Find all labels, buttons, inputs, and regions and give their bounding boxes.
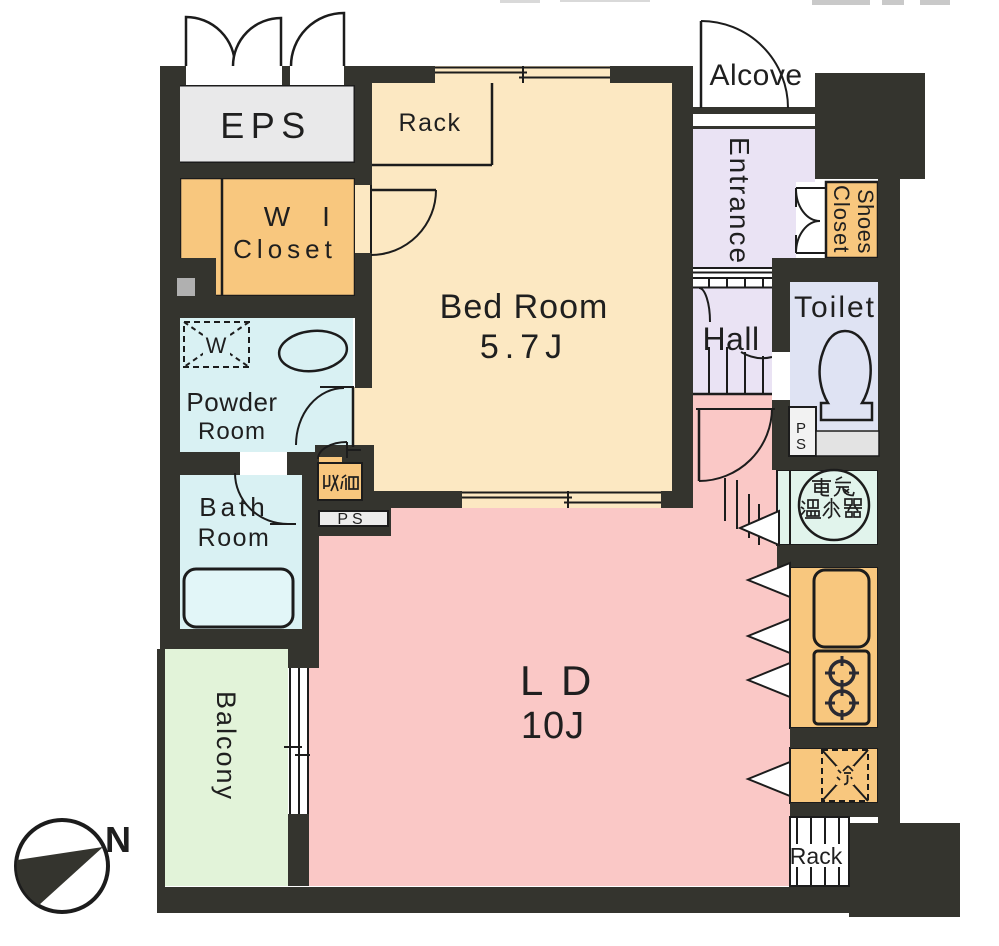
svg-text:Powder: Powder: [186, 387, 277, 417]
svg-text:D: D: [561, 657, 591, 704]
svg-text:Alcove: Alcove: [709, 59, 802, 92]
svg-text:W: W: [206, 333, 227, 358]
svg-text:Bath: Bath: [199, 492, 269, 522]
svg-text:10J: 10J: [521, 705, 585, 747]
svg-text:S: S: [796, 436, 806, 453]
svg-text:Shoes: Shoes: [853, 189, 878, 254]
svg-text:W: W: [264, 201, 291, 232]
svg-text:PS: PS: [337, 511, 366, 528]
svg-text:EPS: EPS: [220, 105, 312, 146]
svg-text:Hall: Hall: [702, 321, 759, 357]
svg-text:Rack: Rack: [399, 109, 462, 137]
svg-text:Bed Room: Bed Room: [440, 288, 609, 326]
svg-text:Closet: Closet: [829, 185, 854, 253]
svg-text:Room: Room: [198, 524, 271, 552]
svg-text:Room: Room: [198, 418, 266, 445]
svg-text:Closet: Closet: [233, 234, 337, 264]
svg-text:Rack: Rack: [790, 843, 843, 869]
svg-text:5.7J: 5.7J: [480, 328, 568, 366]
svg-text:P: P: [796, 420, 806, 437]
svg-text:Entrance: Entrance: [724, 137, 755, 265]
svg-text:Toilet: Toilet: [794, 291, 876, 324]
svg-text:I: I: [322, 201, 330, 232]
svg-text:N: N: [105, 819, 131, 860]
svg-text:Balcony: Balcony: [211, 691, 241, 801]
svg-text:L: L: [520, 657, 543, 704]
